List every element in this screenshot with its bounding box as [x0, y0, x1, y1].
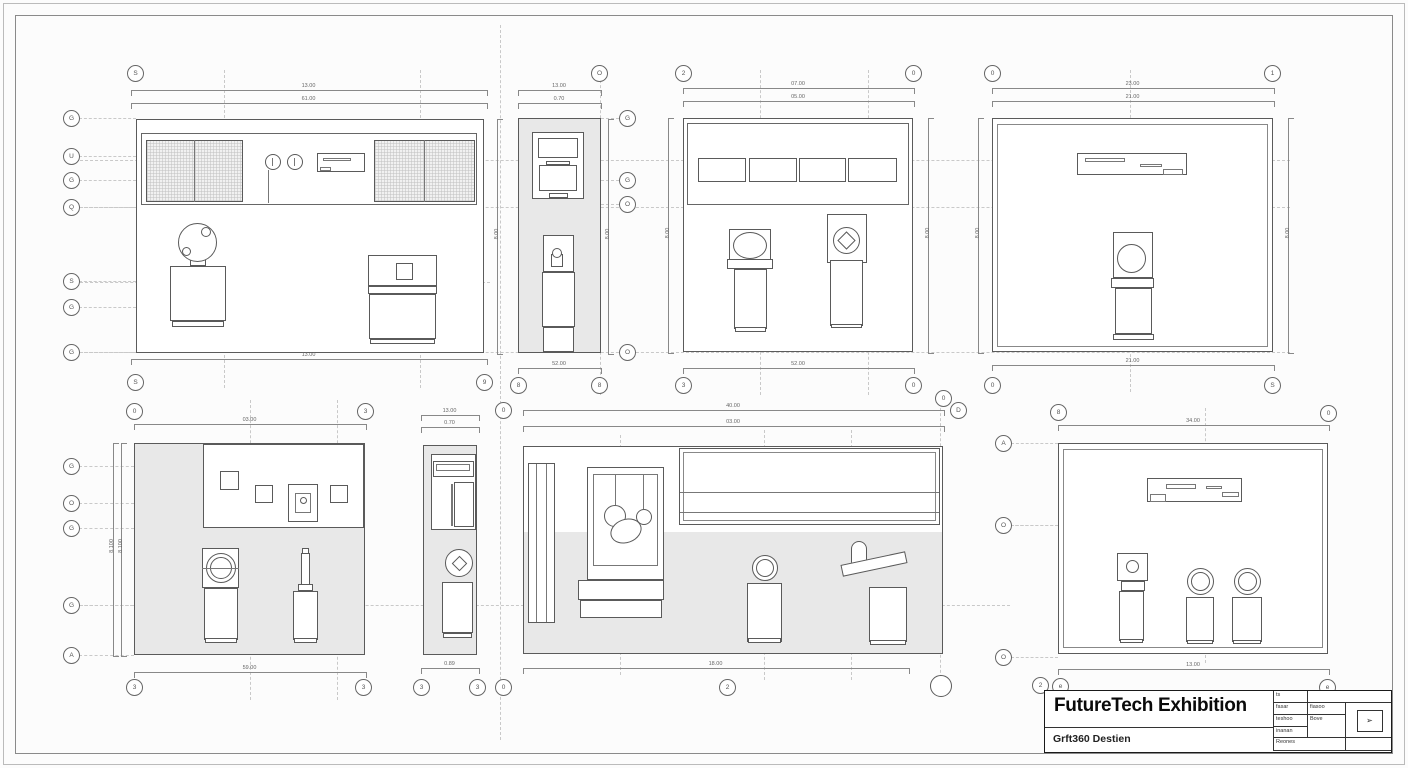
pedestal-base [735, 327, 766, 332]
exhibit-dome [1126, 560, 1139, 573]
dimension-line [992, 365, 1275, 371]
tb-cell: inanan [1273, 727, 1307, 738]
grid-bubble: 3 [355, 679, 372, 696]
hanging-wire [615, 475, 616, 505]
dimension-text: 03.00 [523, 419, 943, 425]
sign-bar [1206, 486, 1222, 489]
round-exhibit [1117, 244, 1146, 273]
screen-base [549, 193, 568, 198]
dimension-text: 59.00 [134, 665, 365, 671]
grid-bubble: G [63, 110, 80, 127]
display-band [727, 259, 773, 269]
grid-bubble: 3 [469, 679, 486, 696]
pedestal [869, 587, 907, 642]
grid-bubble: 0 [935, 390, 952, 407]
tb-stamp-cell: ➢ [1345, 703, 1391, 738]
dimension-text: 8.00 [494, 204, 500, 264]
window-panel [698, 158, 746, 182]
robot-arm-joint [201, 227, 211, 237]
tb-cell [1307, 691, 1391, 703]
dimension-line [518, 368, 602, 374]
project-title: FutureTech Exhibition [1054, 695, 1247, 717]
pedestal [293, 591, 318, 640]
tb-cell [1345, 738, 1391, 751]
pedestal-base [543, 327, 574, 352]
grid-bubble: 9 [476, 374, 493, 391]
display-case-base [370, 339, 435, 344]
dome-exhibit [733, 232, 767, 259]
screen-upper [538, 138, 578, 158]
vent-icon [265, 154, 281, 170]
exhibit-dome [552, 248, 562, 258]
vent-icon [287, 154, 303, 170]
tb-cell: fasar [1273, 703, 1307, 715]
sign-chip [1163, 169, 1183, 175]
dimension-text: 8.00 [1285, 203, 1291, 263]
dimension-text: 03.00 [134, 417, 365, 423]
wall-frame [255, 485, 273, 503]
grid-bubble: S [127, 65, 144, 82]
pedestal [830, 260, 863, 326]
pedestal-base [205, 638, 237, 643]
grid-bubble: 0 [495, 679, 512, 696]
showcase-band [578, 580, 664, 600]
grid-bubble: G [63, 458, 80, 475]
grid-bubble: O [995, 649, 1012, 666]
hanging-wire [643, 475, 644, 509]
vent-detail [272, 158, 273, 166]
pedestal-base [1113, 334, 1154, 340]
pedestal-base [1187, 640, 1213, 644]
dimension-text: 18.00 [523, 661, 908, 667]
tb-cell: fiasoo [1307, 703, 1345, 715]
dimension-text: 13.00 [131, 83, 486, 89]
grid-bubble: 8 [1050, 404, 1067, 421]
pedestal-base [1233, 640, 1261, 644]
pedestal-base [443, 633, 472, 638]
tb-cell: teshoo [1273, 715, 1307, 727]
dimension-text: 23.00 [992, 81, 1273, 87]
grid-bubble: G [63, 597, 80, 614]
bubble-leader [1011, 525, 1058, 526]
mesh-panel-divider [424, 140, 425, 202]
grid-bubble: G [619, 110, 636, 127]
dimension-text: 8.00 [925, 203, 931, 263]
dimension-text: 0.70 [421, 420, 478, 426]
title-block: FutureTech Exhibition Grft360 Destien ts… [1044, 690, 1392, 753]
vent-detail [294, 158, 295, 166]
bubble-leader [79, 352, 136, 353]
grid-bubble: G [63, 299, 80, 316]
banner-inner [683, 452, 936, 521]
pedestal-base [831, 324, 862, 328]
grid-bubble: O [591, 65, 608, 82]
window-panel [848, 158, 897, 182]
grid-bubble: 2 [675, 65, 692, 82]
dimension-line [421, 427, 480, 433]
window-panel [749, 158, 797, 182]
dimension-text: 8.00 [665, 203, 671, 263]
tb-cell: Bove [1307, 715, 1345, 738]
pedestal [1186, 597, 1214, 642]
dimension-text: 13.00 [421, 408, 478, 414]
window-panel [799, 158, 846, 182]
display-case-band [368, 286, 437, 294]
dimension-text: 40.00 [523, 403, 943, 409]
grid-bubble: 0 [984, 377, 1001, 394]
bottle-flange [298, 584, 313, 591]
grid-bubble: 0 [495, 402, 512, 419]
pedestal [1119, 591, 1144, 641]
vitrine-base [1121, 581, 1145, 591]
grid-bubble: 0 [905, 377, 922, 394]
pedestal-base [1120, 639, 1143, 643]
dimension-text: 8.00 [605, 204, 611, 264]
bubble-leader [79, 180, 136, 181]
title-divider [1045, 727, 1273, 728]
grid-bubble: G [63, 520, 80, 537]
grid-bubble: U [63, 148, 80, 165]
robot-arm-icon [178, 223, 217, 262]
dimension-line [523, 426, 945, 432]
exhibit-sphere [636, 509, 652, 525]
pedestal-base [294, 638, 317, 643]
pedestal-base [748, 638, 781, 643]
dimension-text: 0.70 [518, 96, 600, 102]
dimension-text: 07.00 [683, 81, 913, 87]
pedestal [747, 583, 782, 642]
drawing-sheet: 13.00 61.00 13.00 8.00 S G U G Q S G G S… [0, 0, 1408, 768]
pedestal [1115, 288, 1152, 334]
grid-bubble: 1 [1264, 65, 1281, 82]
sign-bar [1166, 484, 1196, 489]
grid-bubble: 8 [510, 377, 527, 394]
wall-frame [330, 485, 348, 503]
dimension-text: 8.00 [975, 203, 981, 263]
dimension-text: 52.00 [518, 361, 600, 367]
porthole-axis [202, 568, 239, 569]
exhibit-box [396, 263, 413, 280]
dimension-text: 05.00 [683, 94, 913, 100]
cursor-icon: ➢ [1357, 710, 1383, 732]
pedestal [170, 266, 226, 321]
sign-chip [1222, 492, 1239, 497]
project-subtitle: Grft360 Destien [1053, 733, 1131, 745]
dimension-text: 8.100 [118, 517, 124, 575]
dimension-text: 34.00 [1058, 418, 1328, 424]
pedestal [542, 272, 575, 327]
grid-bubble: 3 [413, 679, 430, 696]
grid-bubble: S [127, 374, 144, 391]
dimension-text: 8.100 [109, 517, 115, 575]
dimension-line [134, 672, 367, 678]
grid-bubble: G [63, 172, 80, 189]
bubble-leader [79, 281, 136, 282]
robot-glyph-head [300, 497, 307, 504]
dimension-line [523, 668, 910, 674]
bubble-leader [1011, 657, 1058, 658]
mesh-panel-divider [194, 140, 195, 202]
dimension-line [131, 103, 488, 109]
grid-bubble: O [619, 196, 636, 213]
bubble-leader [79, 118, 136, 119]
dimension-line [683, 368, 915, 374]
pedestal [204, 588, 238, 640]
dimension-line [523, 410, 945, 416]
clock-inner [756, 559, 774, 577]
grid-bubble: S [1264, 377, 1281, 394]
dimension-text: 13.00 [518, 83, 600, 89]
banner-line [680, 512, 939, 513]
sign-chip [320, 167, 331, 171]
bubble-leader [79, 307, 136, 308]
dimension-line [683, 101, 915, 107]
sign-bar [1140, 164, 1162, 167]
grid-bubble: G [619, 172, 636, 189]
sign-bar [436, 464, 470, 471]
display-band [1111, 278, 1154, 288]
bubble-leader [79, 207, 136, 208]
robot-arm-joint [182, 247, 191, 256]
grid-bubble: 0 [905, 65, 922, 82]
dimension-text: 13.00 [1058, 662, 1328, 668]
sphere-inner [1191, 572, 1210, 591]
pedestal-base [172, 321, 224, 327]
display-case-body [369, 294, 436, 339]
grid-bubble: O [63, 495, 80, 512]
wall-frame [220, 471, 239, 490]
tb-cell: ts [1273, 691, 1307, 703]
dimension-line [1058, 425, 1330, 431]
grid-bubble: A [63, 647, 80, 664]
grid-bubble: 3 [675, 377, 692, 394]
grid-bubble: O [995, 517, 1012, 534]
grid-bubble: G [63, 344, 80, 361]
bubble-leader [79, 156, 136, 157]
dimension-line [518, 103, 602, 109]
sign-chip [1150, 494, 1166, 502]
banner-line [680, 492, 939, 493]
column-panel [528, 463, 555, 623]
grid-bubble: D [950, 402, 967, 419]
dimension-text: 52.00 [683, 361, 913, 367]
grid-bubble: 0 [126, 403, 143, 420]
sign-bar [323, 158, 351, 161]
screen-edge [451, 484, 453, 526]
wall-screen [454, 482, 474, 527]
column-line [536, 464, 537, 622]
dimension-line [134, 424, 367, 430]
pedestal [442, 582, 473, 633]
pedestal [1232, 597, 1262, 642]
column-line [546, 464, 547, 622]
grid-bubble: S [63, 273, 80, 290]
sphere-inner [1238, 572, 1257, 591]
bottle-neck [301, 553, 310, 586]
pedestal [734, 269, 767, 329]
dimension-line [1058, 669, 1330, 675]
dimension-text: 13.00 [131, 352, 486, 358]
grid-bubble: O [619, 344, 636, 361]
grid-bubble: 3 [357, 403, 374, 420]
dimension-text: 21.00 [992, 94, 1273, 100]
reference-circle [930, 675, 952, 697]
drop-line [268, 170, 269, 203]
grid-bubble: 2 [719, 679, 736, 696]
grid-bubble: 3 [126, 679, 143, 696]
bubble-leader [1011, 443, 1058, 444]
grid-bubble: 8 [591, 377, 608, 394]
sign-bar [1085, 158, 1125, 162]
dimension-text: 61.00 [131, 96, 486, 102]
dimension-line [421, 668, 480, 674]
pedestal-base [870, 640, 906, 645]
dimension-line [131, 359, 488, 365]
showcase-plinth [580, 600, 662, 618]
dimension-text: 0.89 [421, 661, 478, 667]
dimension-line [992, 101, 1275, 107]
title-block-table: ts fasar fiasoo ➢ teshoo Bove inanan Reo… [1273, 691, 1391, 751]
grid-bubble: Q [63, 199, 80, 216]
grid-bubble: A [995, 435, 1012, 452]
dimension-text: 21.00 [992, 358, 1273, 364]
screen-lower [539, 165, 577, 191]
grid-bubble: 0 [984, 65, 1001, 82]
grid-bubble: 0 [1320, 405, 1337, 422]
tb-cell: Reones [1273, 738, 1345, 751]
